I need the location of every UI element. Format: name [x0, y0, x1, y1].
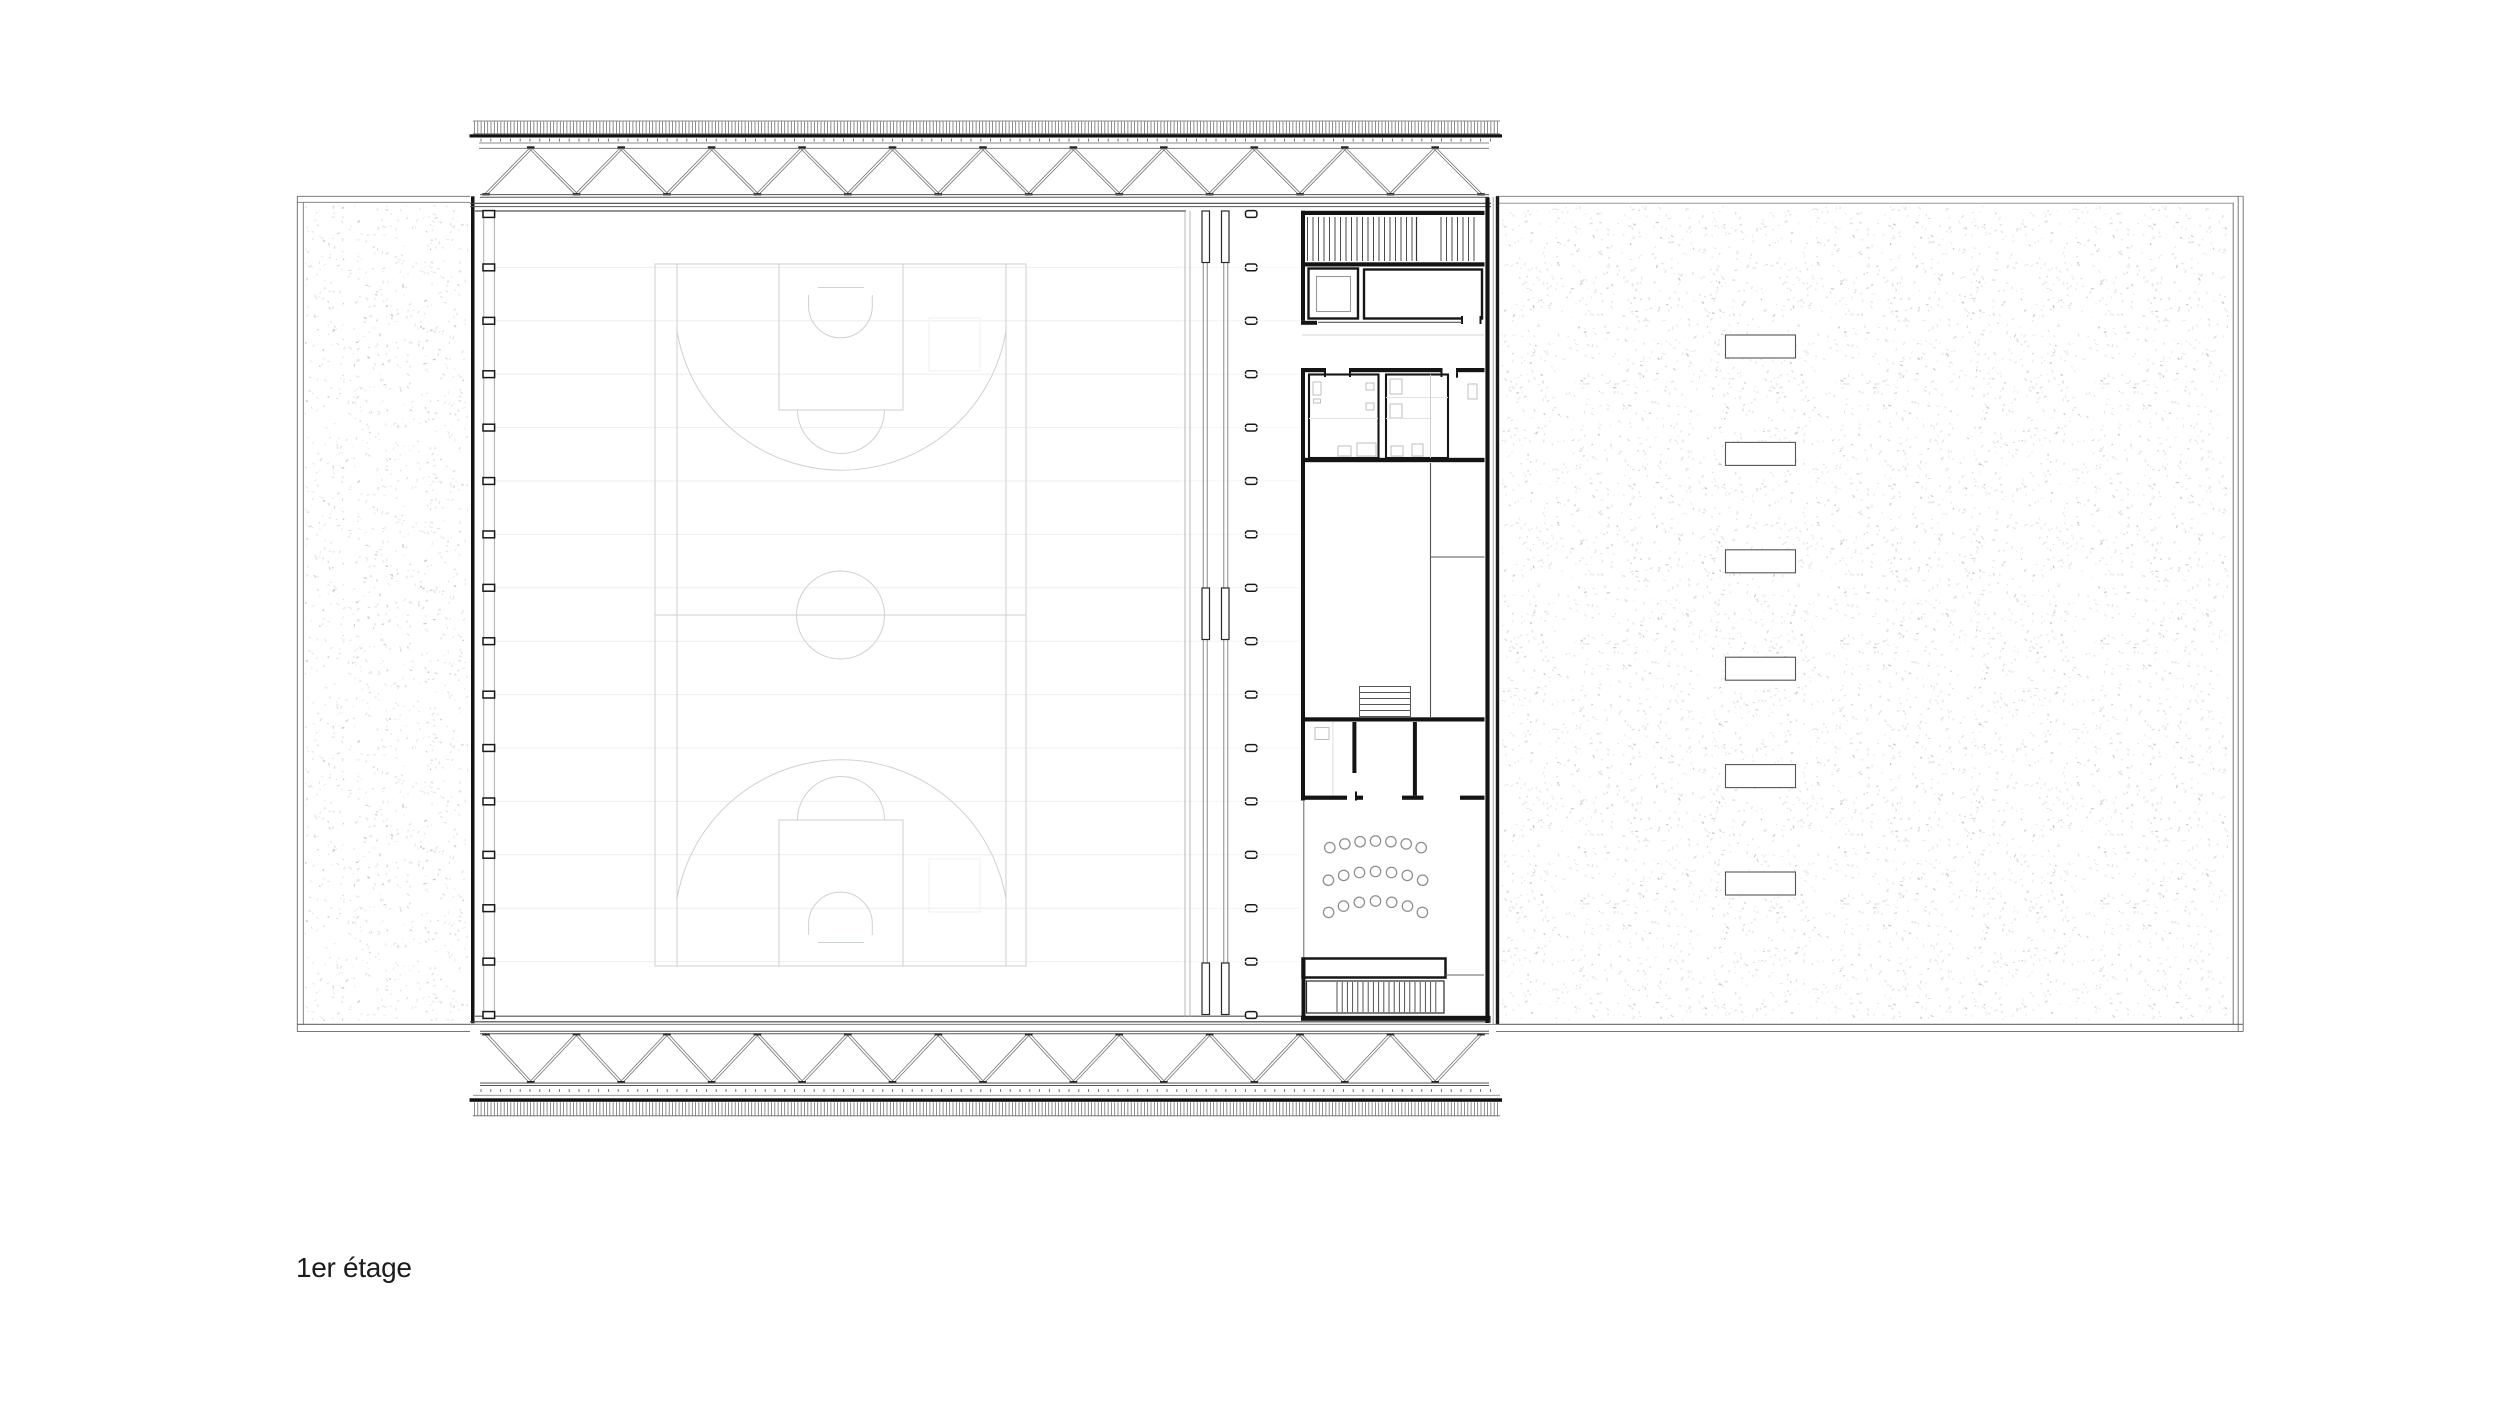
svg-text:1er étage: 1er étage: [296, 1252, 412, 1283]
